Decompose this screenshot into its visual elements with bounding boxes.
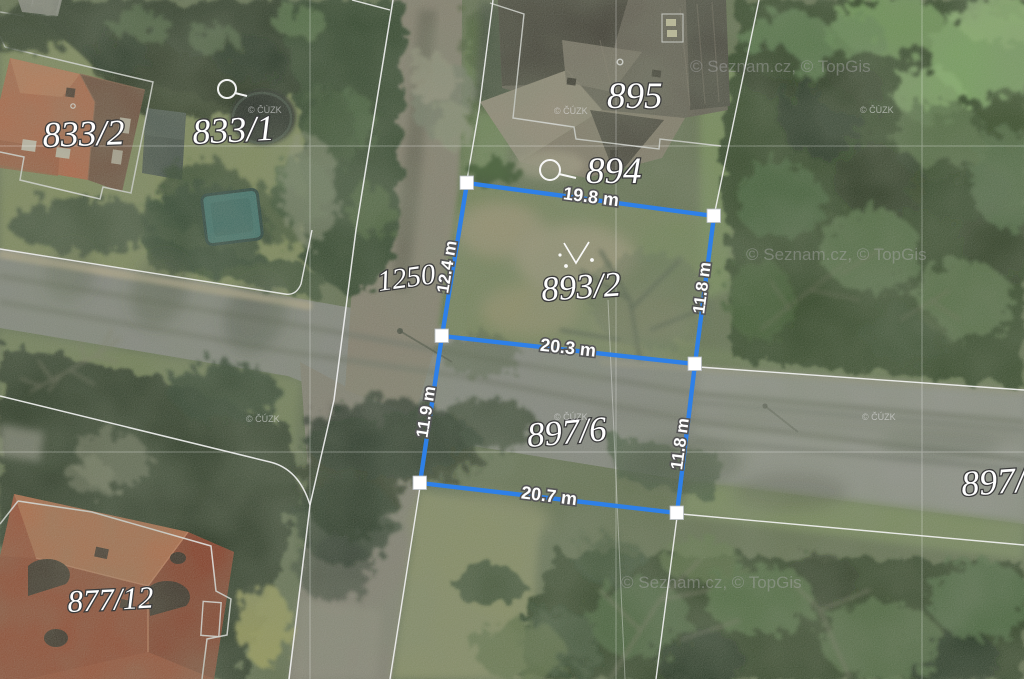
svg-text:877/12: 877/12	[67, 580, 155, 619]
svg-text:© Seznam.cz, © TopGis: © Seznam.cz, © TopGis	[690, 57, 871, 76]
svg-text:© ČÚZK: © ČÚZK	[248, 105, 282, 115]
svg-text:© ČÚZK: © ČÚZK	[554, 412, 588, 422]
svg-text:© ČÚZK: © ČÚZK	[862, 412, 896, 422]
svg-text:© Seznam.cz, © TopGis: © Seznam.cz, © TopGis	[746, 245, 927, 264]
svg-text:893/2: 893/2	[540, 265, 622, 309]
svg-text:833/2: 833/2	[42, 112, 125, 155]
svg-text:© Seznam.cz, © TopGis: © Seznam.cz, © TopGis	[621, 573, 802, 592]
svg-text:© ČÚZK: © ČÚZK	[246, 414, 280, 424]
svg-text:894: 894	[586, 151, 642, 192]
svg-text:© ČÚZK: © ČÚZK	[554, 106, 588, 116]
svg-text:895: 895	[607, 76, 663, 117]
svg-text:897/1: 897/1	[960, 458, 1024, 504]
svg-text:© ČÚZK: © ČÚZK	[860, 105, 894, 115]
